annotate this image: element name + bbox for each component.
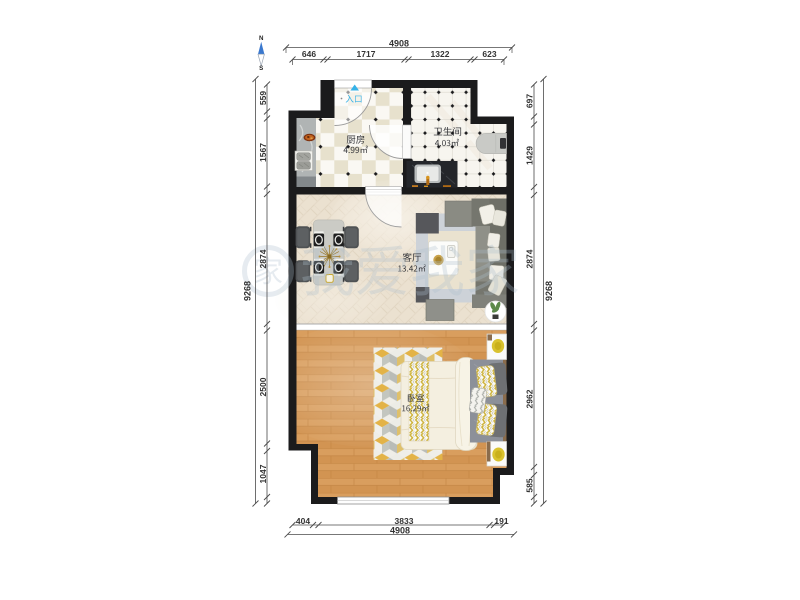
svg-text:1717: 1717 — [357, 49, 376, 59]
svg-text:4908: 4908 — [390, 526, 410, 536]
svg-text:2874: 2874 — [258, 249, 268, 268]
svg-text:623: 623 — [482, 49, 496, 59]
svg-text:585: 585 — [525, 478, 535, 492]
svg-text:9268: 9268 — [544, 281, 554, 301]
svg-text:2874: 2874 — [525, 249, 535, 268]
svg-text:191: 191 — [494, 516, 508, 526]
svg-text:2962: 2962 — [525, 389, 535, 408]
svg-text:559: 559 — [258, 91, 268, 105]
svg-text:N: N — [259, 35, 264, 42]
svg-text:646: 646 — [302, 49, 316, 59]
svg-text:2500: 2500 — [258, 377, 268, 396]
svg-text:697: 697 — [525, 94, 535, 108]
svg-text:1429: 1429 — [525, 146, 535, 165]
svg-text:404: 404 — [296, 516, 310, 526]
svg-text:4908: 4908 — [389, 39, 409, 49]
svg-text:1322: 1322 — [431, 49, 450, 59]
svg-text:1047: 1047 — [258, 464, 268, 483]
svg-text:1567: 1567 — [258, 143, 268, 162]
svg-text:S: S — [259, 65, 263, 72]
svg-text:9268: 9268 — [243, 281, 253, 301]
